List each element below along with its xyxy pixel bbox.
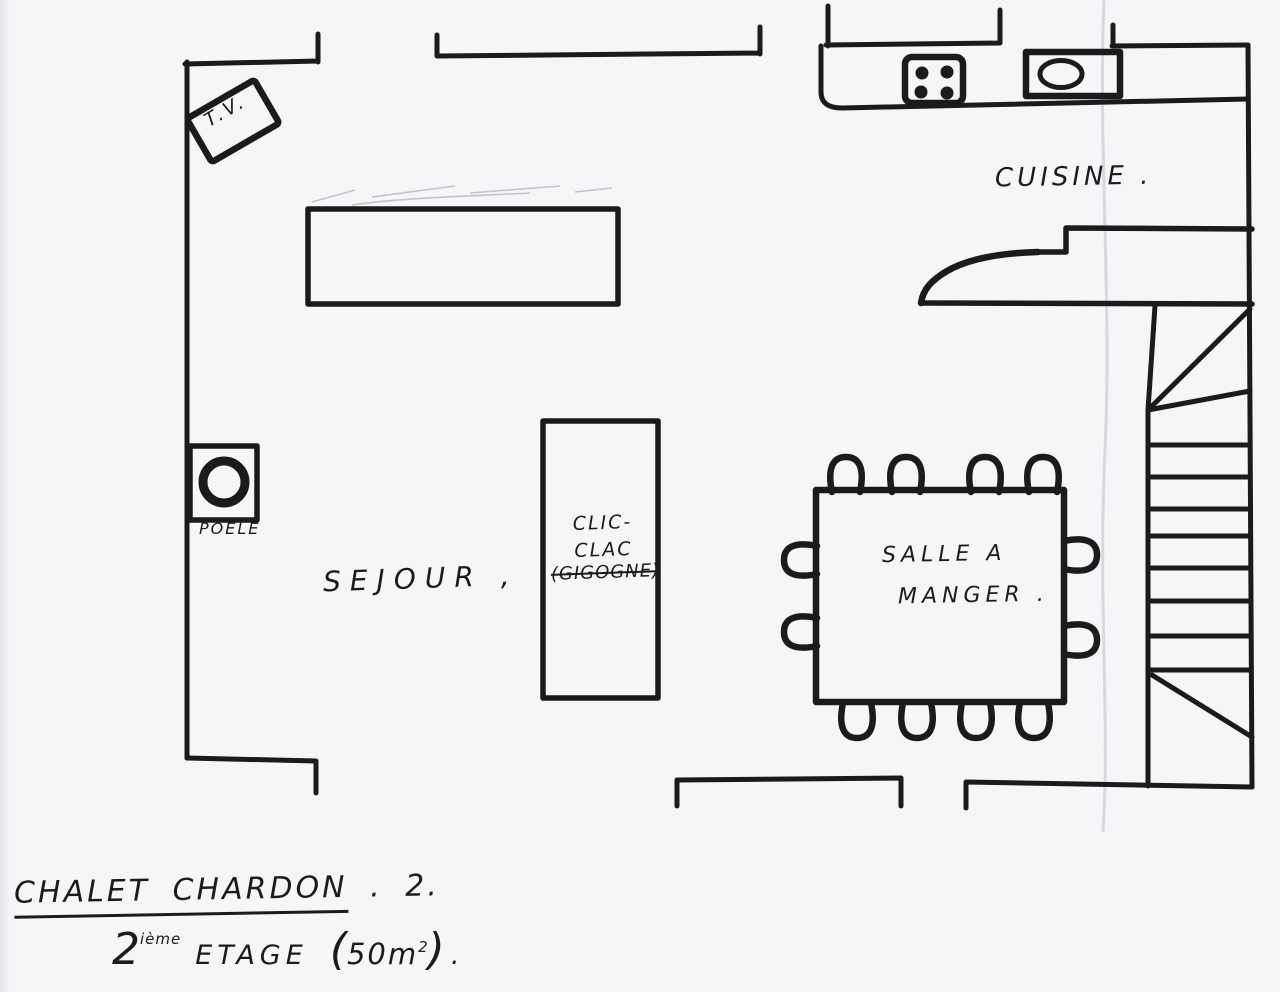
bar-counter — [921, 228, 1252, 304]
stair-left-wall — [1148, 306, 1155, 786]
bottom-wall-right-segment — [966, 782, 1252, 808]
bar-counter-curve — [921, 252, 1038, 303]
dining-chair-icon — [901, 703, 933, 738]
dining-chair-icon — [784, 544, 817, 575]
area-close-paren: ) — [428, 924, 445, 975]
room-label-salle-a-manger-line1: SALLE A — [882, 541, 1007, 568]
bar-counter-bottom — [921, 303, 1252, 304]
kitchen-counter — [821, 46, 1248, 108]
right-wall — [1248, 45, 1252, 787]
kitchen-sink-icon — [1026, 52, 1120, 96]
bottom-wall-middle-segment — [677, 778, 901, 806]
bar-counter-step — [1038, 228, 1252, 252]
clic-clac-line1: CLIC- — [547, 508, 658, 539]
poele-label: POELE — [199, 519, 260, 538]
stair-winder-bottom — [1152, 675, 1252, 737]
trailing-dot: . — [451, 940, 460, 971]
top-wall-right-segment — [1112, 25, 1248, 46]
floor-plan-drawing — [0, 0, 1280, 992]
dining-chair-icon — [1064, 624, 1097, 655]
room-label-sejour: SEJOUR , — [322, 559, 519, 599]
four-burner-hob-icon — [905, 57, 963, 103]
dining-chair-icon — [841, 703, 873, 738]
dining-chair-icon — [784, 616, 817, 647]
top-wall-middle-segment — [437, 27, 760, 56]
outer-walls — [185, 6, 1252, 808]
floor-ordinal: ième — [140, 930, 181, 948]
staircase-icon — [1148, 306, 1252, 786]
wood-stove-icon — [190, 446, 257, 520]
bottom-wall-left-segment — [187, 758, 316, 793]
plan-title-suffix: . 2. — [370, 868, 440, 904]
scan-crease — [1102, 0, 1107, 832]
top-wall-left-segment — [185, 34, 318, 64]
stair-treads — [1148, 445, 1250, 670]
pencil-scribble — [312, 186, 612, 205]
floor-word: ETAGE — [195, 940, 308, 971]
dining-chair-icon — [1018, 703, 1050, 738]
plan-subtitle: 2ièmeETAGE(50m2). — [112, 924, 459, 975]
area-value: 50m — [347, 937, 418, 971]
kitchen-top-wall — [826, 6, 1000, 46]
room-label-cuisine: CUISINE . — [995, 161, 1153, 194]
room-label-salle-a-manger-line2: MANGER . — [898, 582, 1049, 610]
floor-number: 2 — [112, 924, 140, 975]
dining-chair-icon — [1064, 539, 1097, 570]
area-open-paren: ( — [330, 924, 347, 975]
dining-chair-icon — [960, 703, 992, 738]
scanned-floor-plan-sheet: T.V. CUISINE . POELE SEJOUR , CLIC- CLAC… — [0, 0, 1280, 992]
clic-clac-label: CLIC- CLAC — [547, 508, 659, 566]
area-exponent: 2 — [418, 938, 428, 956]
plan-title: CHALET CHARDON . 2. — [14, 868, 440, 910]
plan-title-main: CHALET CHARDON — [14, 870, 348, 919]
sofa-rectangle — [308, 209, 618, 304]
